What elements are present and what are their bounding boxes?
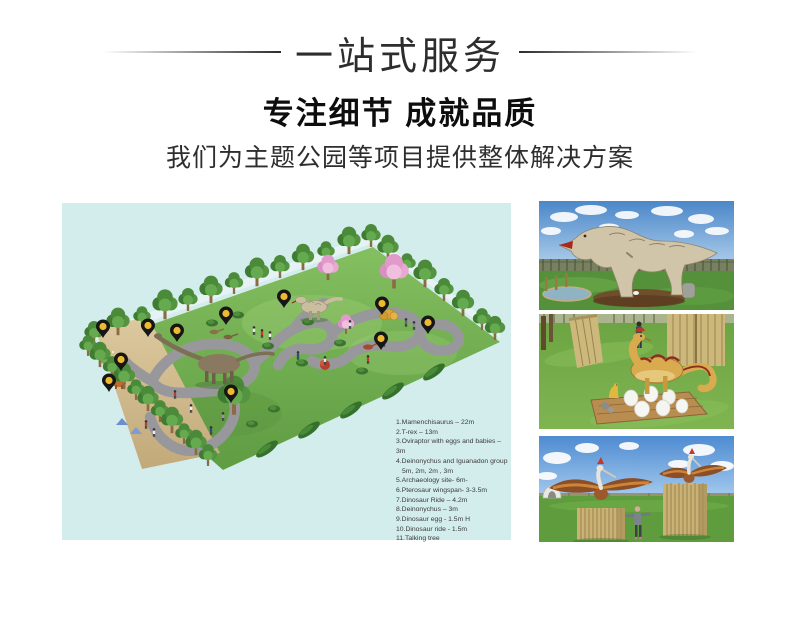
legend-item: 11.Talking tree <box>396 534 508 544</box>
pterosaur-photo <box>539 436 734 542</box>
pond <box>543 287 591 301</box>
banner-divider-right <box>519 51 697 53</box>
banner-title: 一站式服务 <box>295 25 505 80</box>
banner-divider-left <box>103 51 281 53</box>
legend-item: 5m, 2m, 2m , 3m <box>396 467 508 477</box>
legend-item: 6.Pterosaur wingspan- 3-3.5m <box>396 486 508 496</box>
legend-item: 8.Deinonychus – 3m <box>396 505 508 515</box>
legend-item: 3.Oviraptor with eggs and babies – 3m <box>396 437 508 456</box>
oviraptor-eggs-photo <box>539 314 734 429</box>
legend-item: 4.Deinonychus and Iguanadon group <box>396 457 508 467</box>
page-title: 专注细节 成就品质 <box>0 88 800 133</box>
oviraptor-photo-illustration <box>539 314 734 429</box>
trex-photo-illustration <box>539 201 734 310</box>
rock <box>682 283 695 298</box>
fence-enclosure <box>573 507 629 542</box>
page-subtitle: 我们为主题公园等项目提供整体解决方案 <box>0 138 800 174</box>
legend-item: 1.Mamenchisaurus – 22m <box>396 418 508 428</box>
section-banner: 一站式服务 <box>0 28 800 76</box>
legend-item: 2.T-rex – 13m <box>396 428 508 438</box>
legend-item: 10.Dinosaur ride - 1.5m <box>396 525 508 535</box>
trex-photo <box>539 201 734 310</box>
park-plan-image: 1.Mamenchisaurus – 22m 2.T-rex – 13m 3.O… <box>62 203 511 540</box>
legend-item: 9.Dinosaur egg - 1.5m H <box>396 515 508 525</box>
map-pin-icon <box>102 374 116 393</box>
promo-page: 一站式服务 专注细节 成就品质 我们为主题公园等项目提供整体解决方案 <box>0 0 800 626</box>
legend-item: 7.Dinosaur Ride – 4.2m <box>396 496 508 506</box>
fence-enclosure <box>659 483 711 540</box>
pterosaur-photo-illustration <box>539 436 734 542</box>
attractions-legend: 1.Mamenchisaurus – 22m 2.T-rex – 13m 3.O… <box>396 418 508 544</box>
legend-item: 5.Archaeology site- 6m- <box>396 476 508 486</box>
